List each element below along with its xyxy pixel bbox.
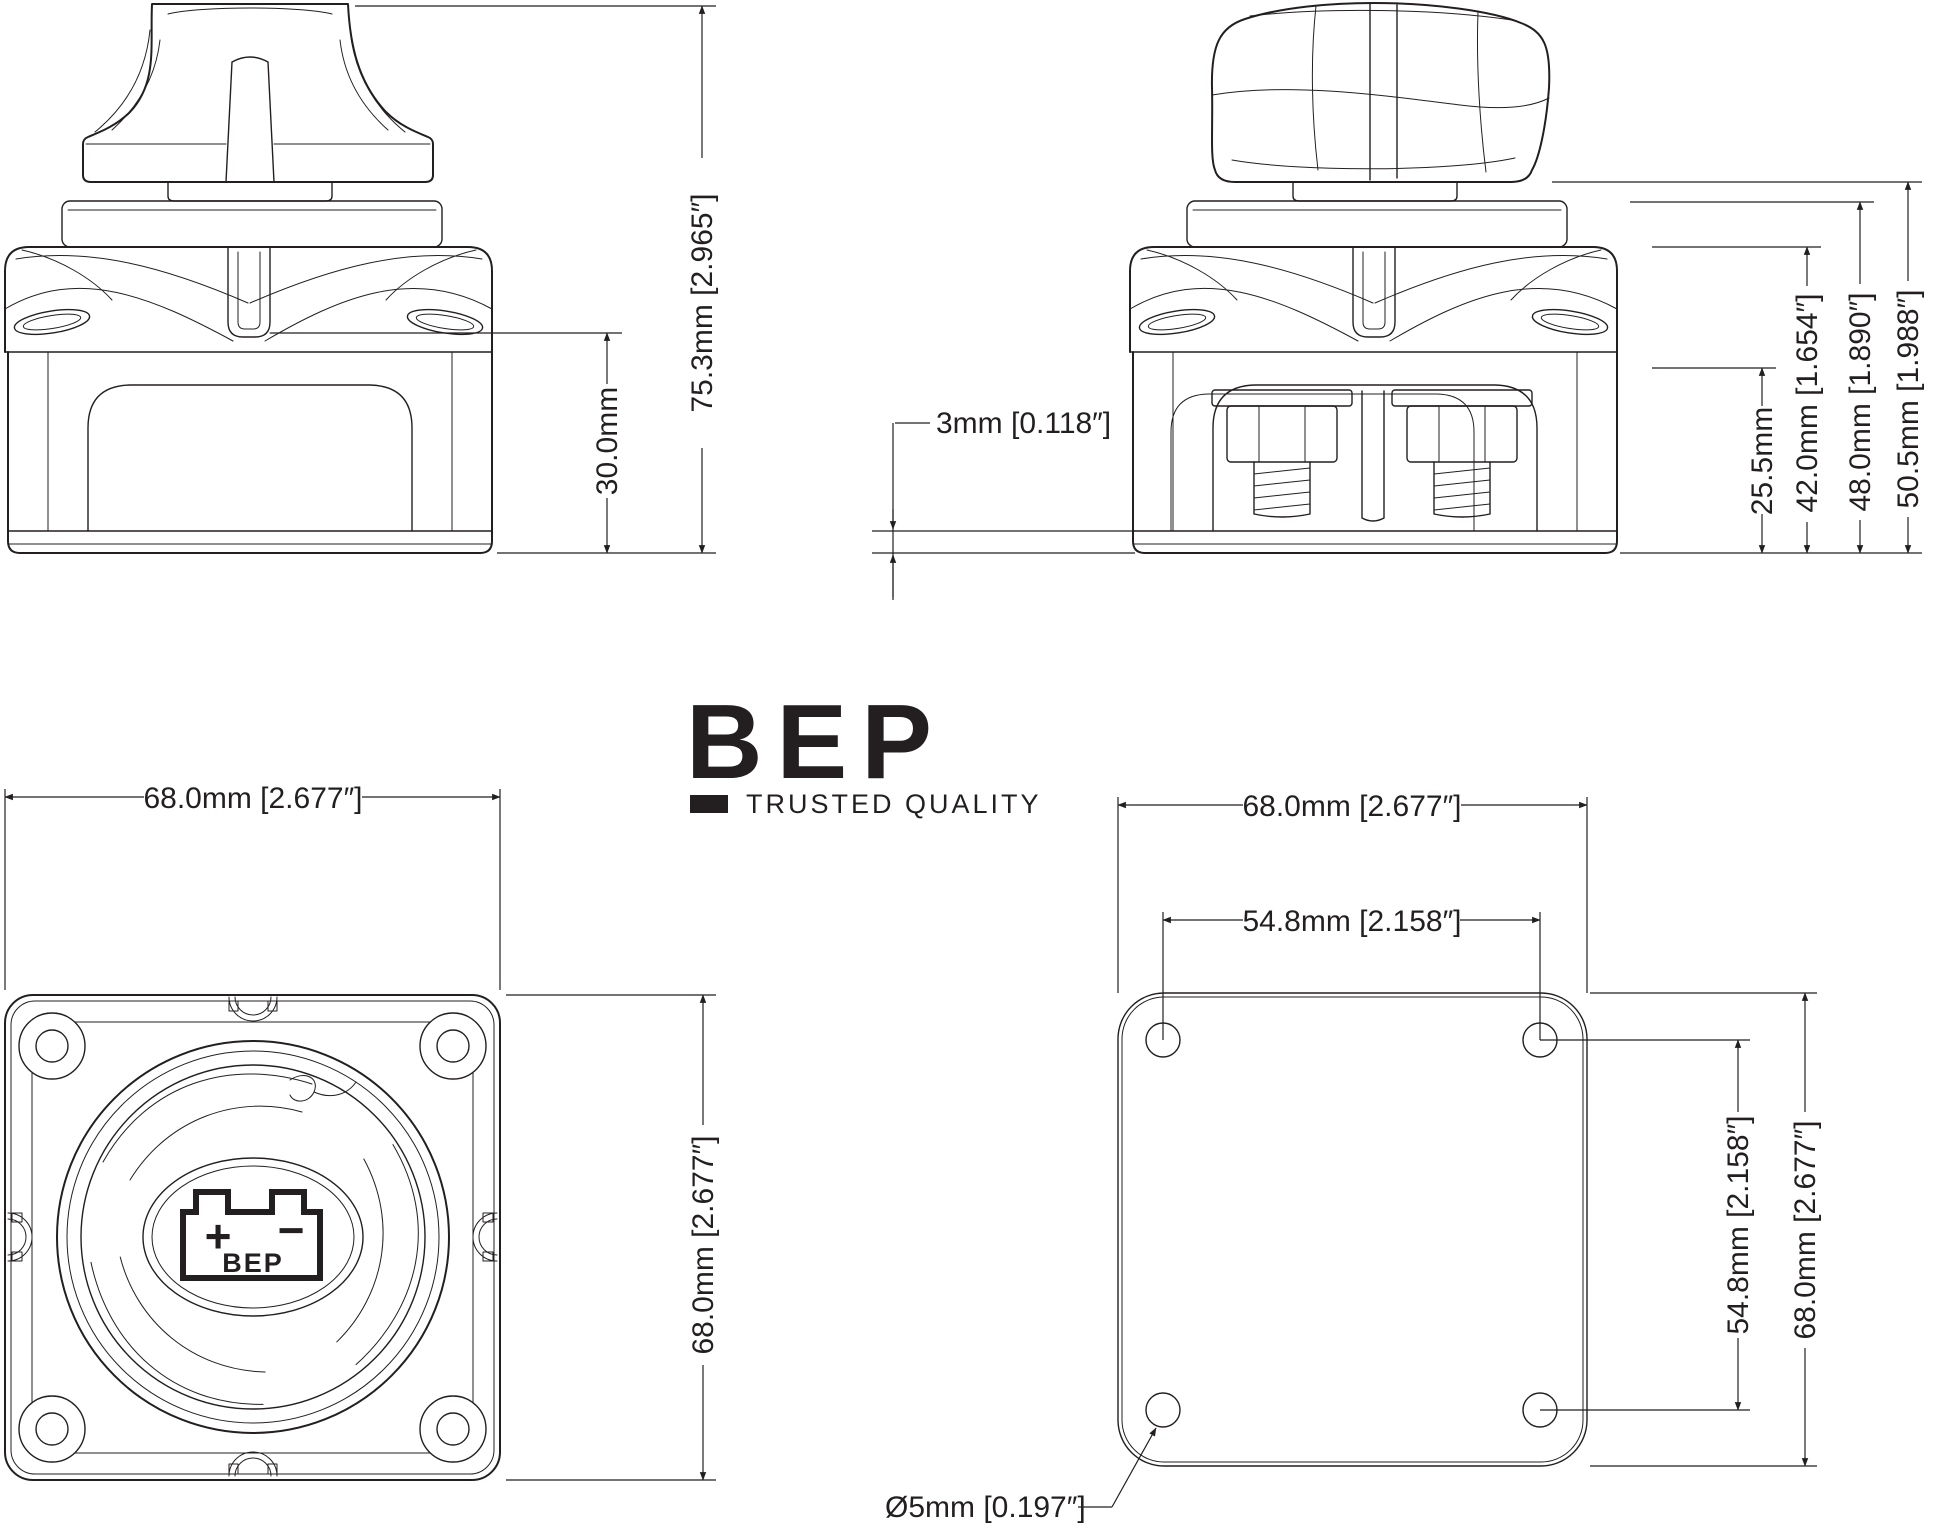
brand-logo-mark bbox=[690, 795, 728, 813]
side-dimension-recess-depth: 3mm [0.118″] bbox=[872, 407, 1135, 600]
side-terminal-studs bbox=[1171, 390, 1532, 531]
side-dimension-flange-height: 42.0mm [1.654″] bbox=[1652, 247, 1824, 553]
dim-label-face-width: 68.0mm [2.677″] bbox=[143, 782, 362, 815]
dim-label-flange-height: 42.0mm [1.654″] bbox=[1791, 293, 1824, 512]
dim-label-face-height: 68.0mm [2.677″] bbox=[687, 1135, 720, 1354]
dim-label-hole-diameter: Ø5mm [0.197″] bbox=[885, 1491, 1086, 1524]
front-knob bbox=[83, 4, 433, 182]
template-dimension-hole-diameter: Ø5mm [0.197″] bbox=[885, 1428, 1156, 1524]
dim-label-hole-spacing-y: 54.8mm [2.158″] bbox=[1722, 1115, 1755, 1334]
dim-label-template-height: 68.0mm [2.677″] bbox=[1789, 1120, 1822, 1339]
terminal-stud-left bbox=[1212, 390, 1352, 517]
dim-label-recess-depth: 3mm [0.118″] bbox=[936, 407, 1111, 440]
brand-logo-text: BEP bbox=[686, 683, 946, 801]
face-dimension-width: 68.0mm [2.677″] bbox=[5, 782, 500, 990]
front-view: 75.3mm [2.965″] 30.0mm bbox=[5, 4, 719, 553]
front-body bbox=[5, 182, 492, 553]
side-view: 50.5mm [1.988″] 48.0mm [1.890″] 42.0mm [… bbox=[872, 3, 1925, 600]
side-body bbox=[1130, 182, 1617, 553]
face-dimension-height: 68.0mm [2.677″] bbox=[506, 995, 720, 1480]
dim-label-hole-spacing-x: 54.8mm [2.158″] bbox=[1242, 905, 1461, 938]
terminal-stud-right bbox=[1392, 390, 1532, 517]
face-view: + − BEP 68.0mm [2.677″] 68.0mm [2.677″] bbox=[5, 782, 720, 1480]
dim-label-stud-height: 25.5mm bbox=[1746, 407, 1779, 515]
mounting-template-view: 68.0mm [2.677″] 54.8mm [2.158″] 54.8mm [… bbox=[885, 790, 1822, 1524]
technical-drawing-page: 75.3mm [2.965″] 30.0mm bbox=[0, 0, 1946, 1527]
dim-label-template-width: 68.0mm [2.677″] bbox=[1242, 790, 1461, 823]
template-dimension-width: 68.0mm [2.677″] bbox=[1118, 790, 1587, 993]
front-dimension-base-height: 30.0mm bbox=[270, 333, 624, 553]
template-plate bbox=[1118, 993, 1587, 1466]
side-dimension-stud-height: 25.5mm bbox=[1652, 368, 1779, 553]
battery-bep-label: BEP bbox=[222, 1248, 284, 1278]
template-dimension-height: 68.0mm [2.677″] bbox=[1590, 993, 1822, 1466]
dim-label-base-height: 30.0mm bbox=[591, 387, 624, 495]
brand-tagline: TRUSTED QUALITY bbox=[746, 789, 1042, 819]
brand-logo: BEP TRUSTED QUALITY bbox=[686, 683, 1042, 819]
dim-label-overall-height: 75.3mm [2.965″] bbox=[686, 193, 719, 412]
dim-label-collar-height: 48.0mm [1.890″] bbox=[1844, 292, 1877, 511]
side-knob bbox=[1212, 3, 1549, 182]
dim-label-body-height: 50.5mm [1.988″] bbox=[1892, 289, 1925, 508]
battery-switch-dimension-drawing: 75.3mm [2.965″] 30.0mm bbox=[0, 0, 1946, 1527]
